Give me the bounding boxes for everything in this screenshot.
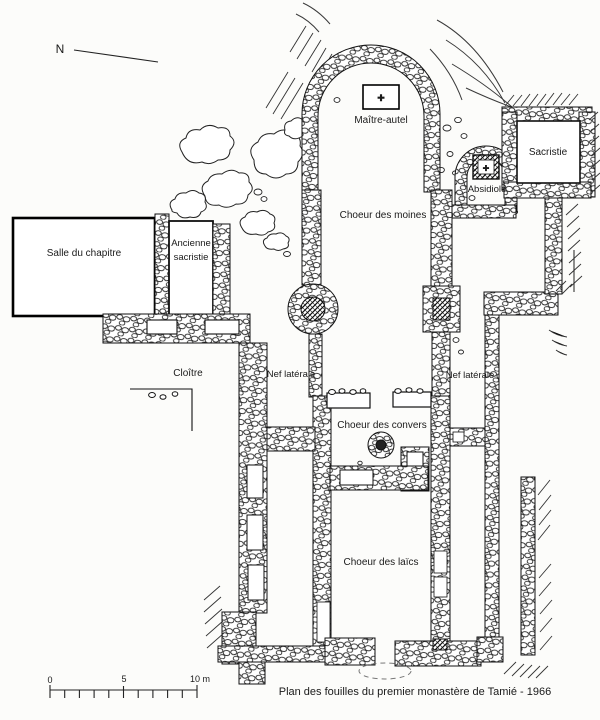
choeur-des-convers-label: Choeur des convers — [337, 420, 427, 431]
scale-bar: 0 5 10 m — [47, 674, 210, 698]
nef-laterale-left-label: Nef latérale — [267, 369, 316, 380]
ancienne-sacristie-label-2: sacristie — [174, 252, 209, 263]
choeur-des-laics-label: Choeur des laïcs — [343, 557, 418, 568]
nef-laterale-right-label: Nef latérale — [446, 370, 495, 381]
aisle-wall-right-corner — [484, 292, 558, 315]
salle-du-chapitre-room — [13, 218, 155, 316]
cloitre-label: Cloître — [173, 368, 203, 379]
north-label: N — [56, 42, 65, 56]
scale-10m-label: 10 m — [190, 674, 210, 684]
crossing-pillar-core — [433, 298, 450, 320]
small-pillar-core — [376, 440, 386, 450]
absidiole-bottom-wall — [452, 205, 516, 218]
ancienne-sacristie-label-1: Ancienne — [171, 238, 211, 249]
aisle-cross-wall-left — [263, 427, 315, 451]
plan-drawing: N — [0, 0, 600, 720]
north-arrow: N — [56, 42, 158, 62]
ancienne-sacristie-room — [169, 221, 213, 317]
maitre-autel-label: Maître-autel — [354, 115, 407, 126]
nave-wall-right-lower — [431, 396, 450, 648]
salle-du-chapitre-label: Salle du chapitre — [47, 248, 122, 259]
scale-5-label: 5 — [121, 674, 126, 684]
north-line — [74, 50, 158, 62]
boundary-wall-east — [521, 477, 535, 655]
sacristie-label: Sacristie — [529, 147, 568, 158]
wall-below-sacristie — [545, 198, 562, 294]
west-door-threshold — [359, 663, 411, 679]
excavation-plan-page: N — [0, 0, 600, 720]
west-footings — [218, 612, 503, 684]
absidiole-cross-icon: ✚ — [483, 164, 490, 173]
nave-wall-left-upper — [309, 334, 322, 397]
plan-caption: Plan des fouilles du premier monastère d… — [279, 686, 552, 698]
absidiole-label: Absidiole — [468, 184, 507, 195]
choir-wall-right — [431, 190, 452, 286]
round-pillar-core — [301, 297, 325, 321]
monastic-buildings — [13, 214, 250, 431]
aisle-wall-right — [485, 315, 499, 648]
choeur-des-moines-label: Choeur des moines — [340, 210, 427, 221]
scale-0-label: 0 — [47, 675, 52, 685]
nave-wall-right-upper — [432, 332, 450, 396]
maitre-autel-cross-icon: ✚ — [377, 93, 385, 103]
choir-wall-left — [302, 190, 321, 285]
choir-screen — [327, 388, 431, 408]
